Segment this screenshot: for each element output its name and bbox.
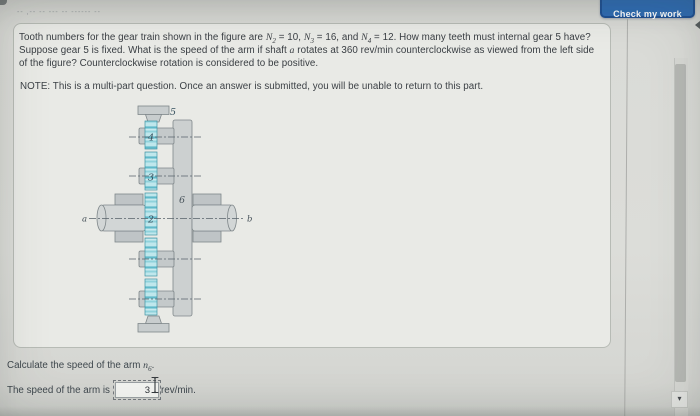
blurred-header-text: -- ,-- -- --- -- ------ -- [17,9,101,16]
panel-divider [624,19,628,416]
scrollbar-left-arrow-icon [695,21,700,29]
shaft-b [192,194,237,242]
label-arm-6: 6 [179,195,185,206]
label-gear-3: 3 [148,173,154,184]
internal-gear5-bottom-cap [138,316,169,332]
question-card: Tooth numbers for the gear train shown i… [13,23,611,348]
scrollbar-thumb[interactable] [675,64,686,382]
question-text: Tooth numbers for the gear train shown i… [19,31,603,70]
check-my-work-button[interactable]: Check my work [600,0,695,18]
photo-corner-artifact [0,0,7,5]
gear-3-mirror-teeth [145,238,157,276]
label-gear-2: 2 [147,215,154,226]
answer-prefix-text: The speed of the arm is [7,385,110,396]
internal-gear5-top-cap [138,106,169,122]
answer-input[interactable] [115,382,159,398]
label-gear-5: 5 [170,107,176,118]
note-text: NOTE: This is a multi-part question. Onc… [20,80,604,93]
label-shaft-b: b [247,215,252,225]
scroll-down-icon: ▾ [677,394,681,403]
screenshot-frame: -- ,-- -- --- -- ------ -- Check my work… [0,0,700,416]
answer-unit-text: rev/min. [161,385,196,396]
gear-4-mirror-teeth [145,279,157,315]
arm-6-plate [173,120,192,316]
label-gear-4: 4 [147,133,154,144]
gear-3-teeth [145,152,157,190]
gear-train-figure: 5 4 3 2 6 a b [81,104,256,341]
answer-row: The speed of the arm is rev/min. [7,382,267,404]
scrollbar-down-button[interactable]: ▾ [671,391,688,408]
label-shaft-a: a [82,215,87,225]
instruction-text: Calculate the speed of the arm n6. [7,360,154,371]
shaft-a [97,194,146,242]
photo-bottom-shade [0,406,700,416]
